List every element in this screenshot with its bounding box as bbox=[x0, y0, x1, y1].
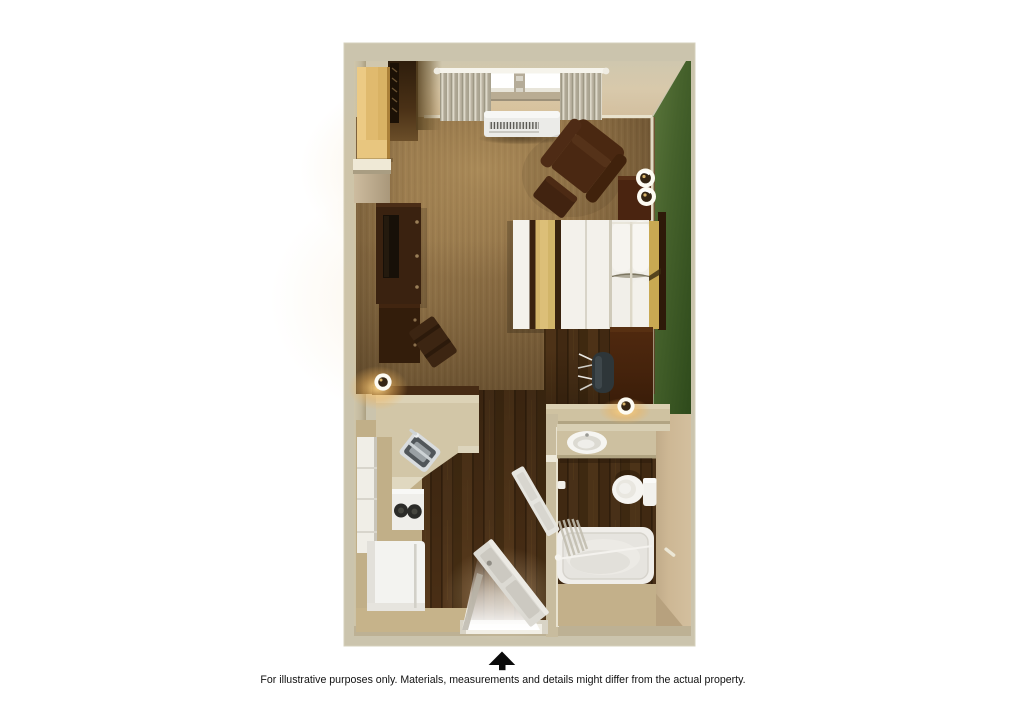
svg-text:For illustrative purposes only: For illustrative purposes only. Material… bbox=[260, 674, 745, 686]
